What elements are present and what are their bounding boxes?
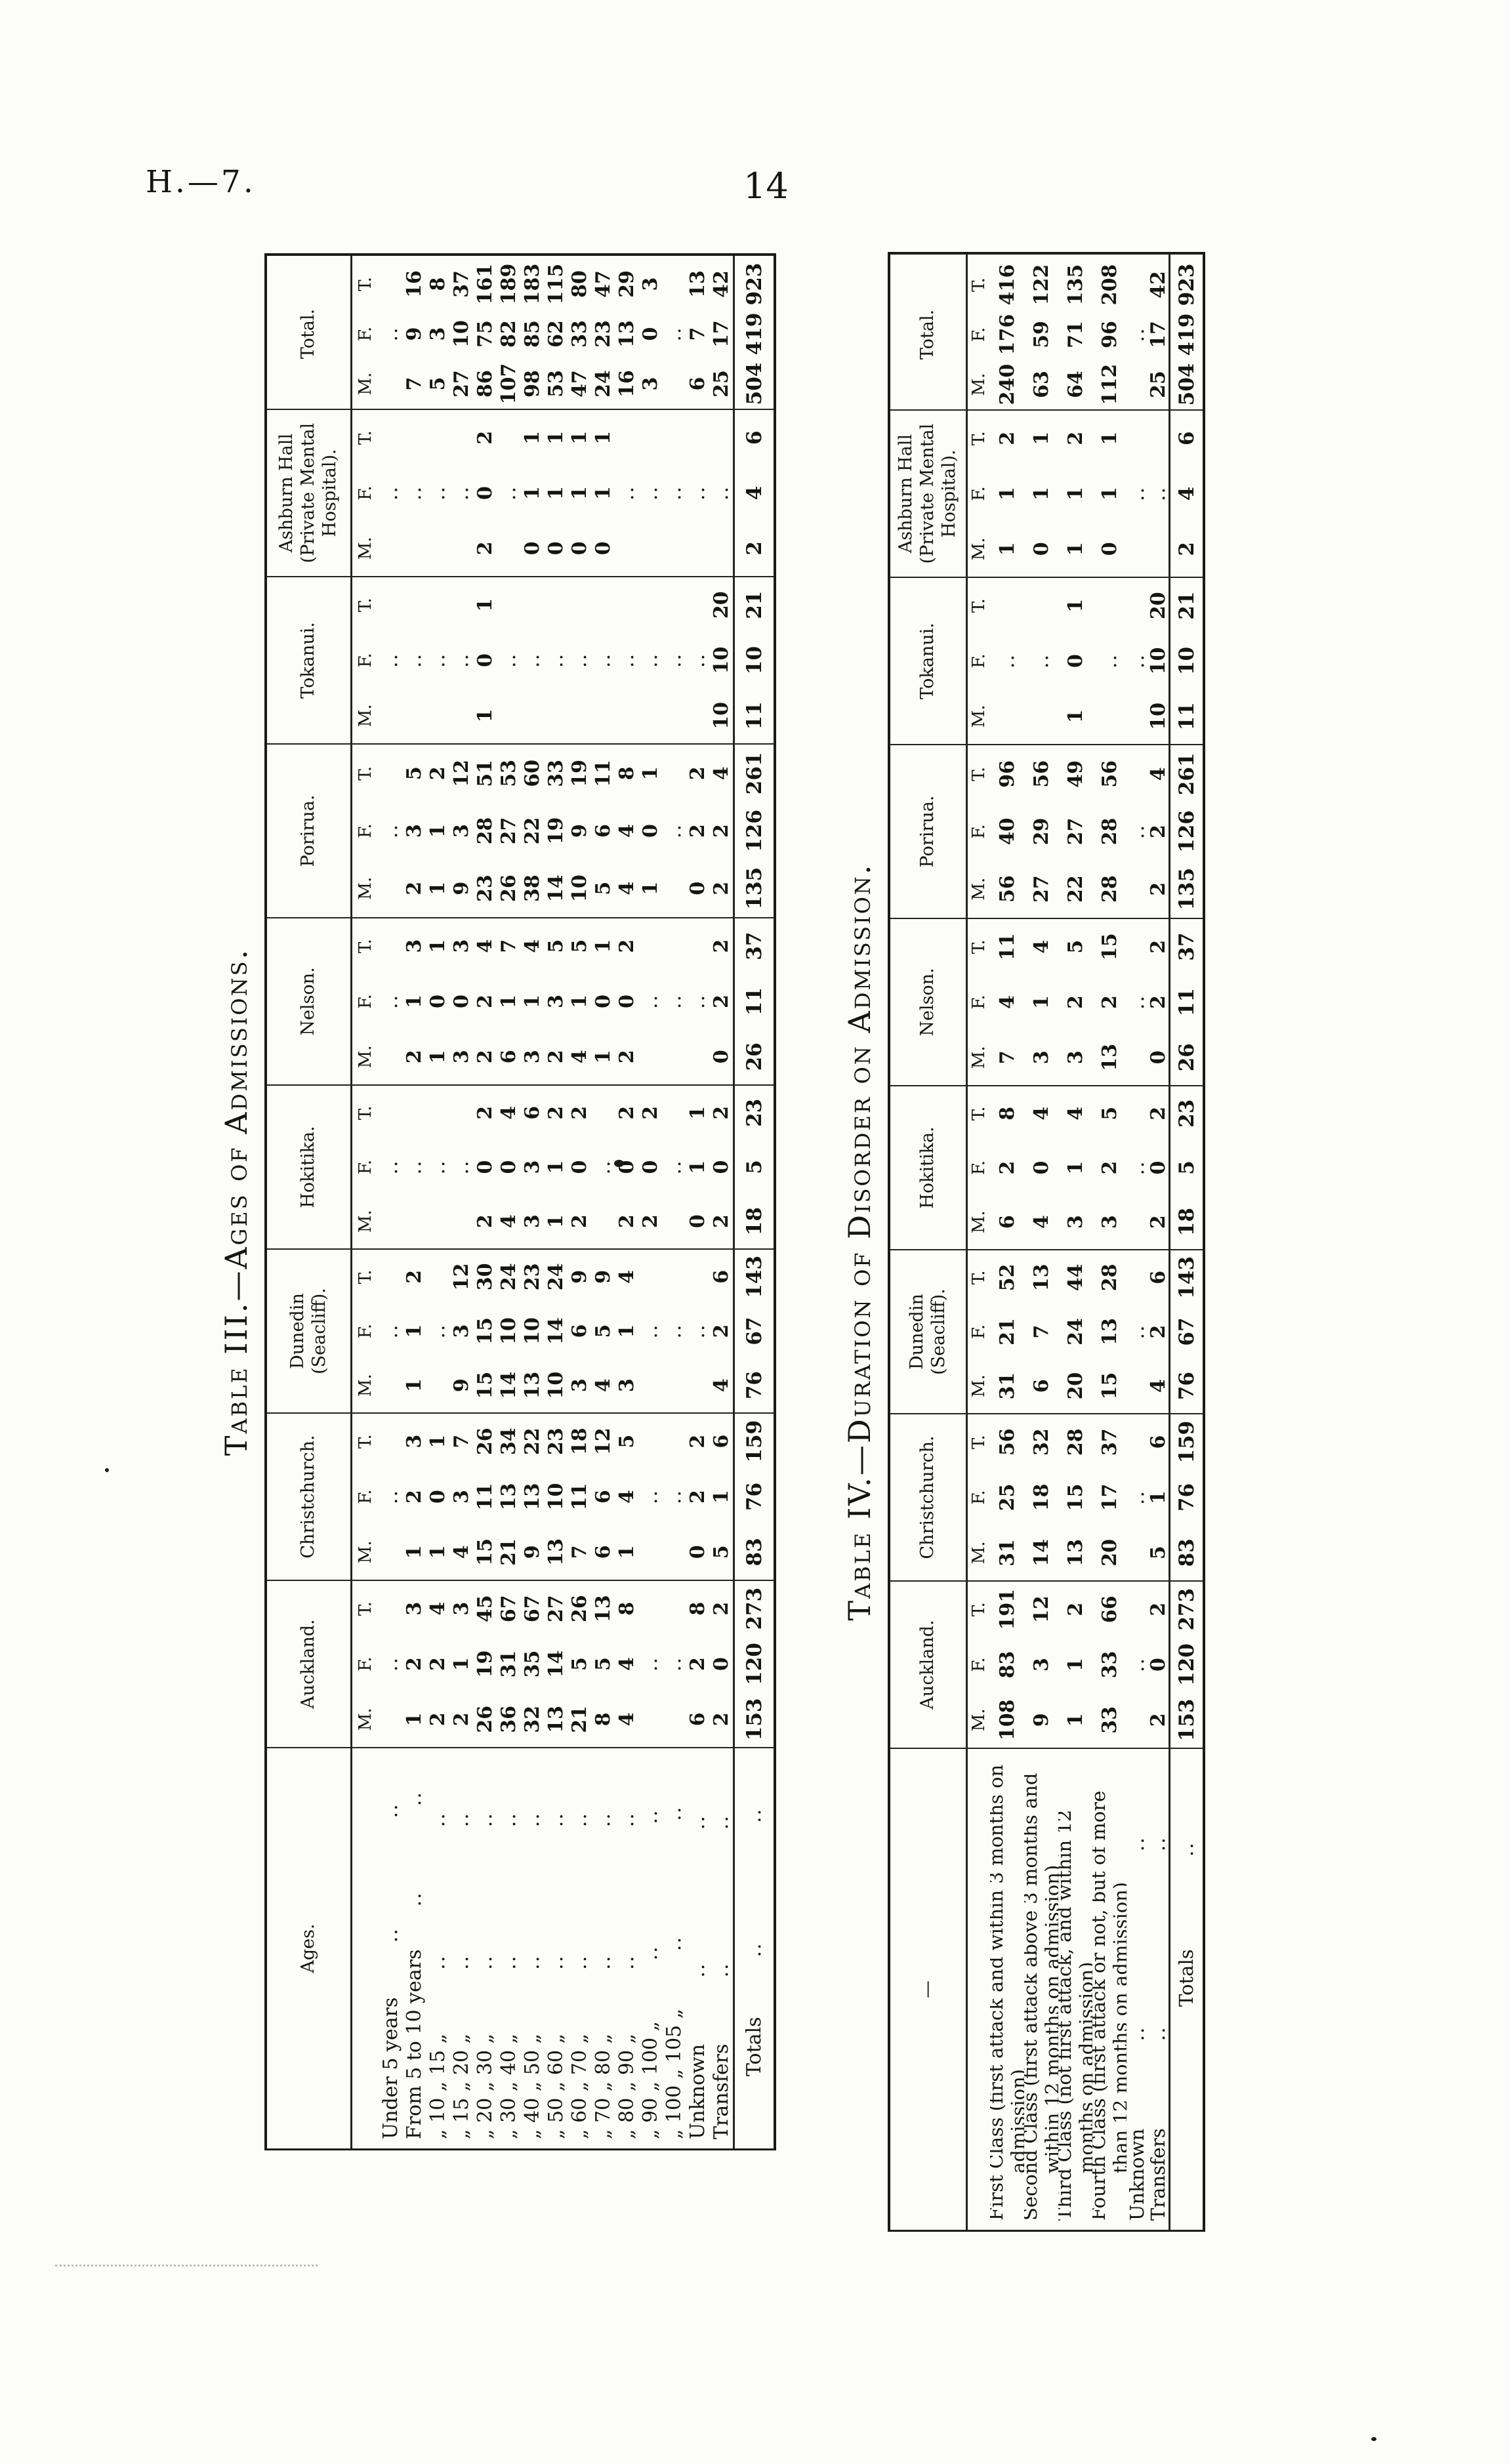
data-cell: 202 (709, 1086, 733, 1250)
totals-cell-m: 26 (1175, 1030, 1199, 1085)
stub-header: — (890, 1749, 966, 2230)
data-cell-mft: 101424 (545, 1250, 568, 1412)
data-cell-m: 3 (521, 1029, 544, 1084)
data-cell-m: 7 (403, 359, 426, 409)
data-cell-mft: .. (686, 577, 709, 743)
data-cell-mft: 303 (450, 918, 473, 1084)
data-cell-mft: 448 (615, 1581, 638, 1747)
data-cell-mft: .. (686, 1250, 709, 1412)
data-cell-mft: 251742 (1148, 260, 1169, 409)
data-cell-t (663, 1581, 686, 1636)
data-cell-t (686, 577, 709, 632)
data-cell-f: 3 (1030, 1637, 1053, 1692)
data-cell-mft: 101 (639, 745, 662, 917)
data-cell: .. (1092, 578, 1127, 745)
subheader-m: M. (969, 359, 989, 409)
totals-cell-f: 76 (743, 1469, 766, 1524)
data-cell-t: 4 (1064, 1086, 1087, 1141)
data-cell-t: 16 (403, 259, 426, 309)
data-cell-t: 11 (592, 745, 615, 802)
subheader-row: M.F.T.M.F.T.M.F.T.M.F.T.M.F.T.M.F.T.M.F.… (968, 255, 990, 2230)
document-reference: H.—7. (146, 164, 256, 200)
data-cell-m: 4 (710, 1358, 733, 1412)
data-cell-t: 8 (615, 1581, 638, 1636)
data-cell-f: 1 (686, 1140, 709, 1195)
data-cell: 272956 (1024, 745, 1058, 919)
data-cell-mft: .. (639, 410, 662, 576)
leader-dots: .. (1148, 1749, 1169, 1939)
totals-row: Totals..15312027383761597667143185232611… (1169, 255, 1203, 2230)
data-cell: 314 (520, 918, 544, 1086)
data-cell-m (686, 1029, 709, 1084)
data-cell: 232851 (473, 745, 497, 918)
table-iv: —Auckland.Christchurch.Dunedin (Seacliff… (888, 252, 1205, 2232)
data-cell-f: 4 (615, 802, 638, 860)
col-header-nelson: Nelson. (890, 919, 966, 1086)
data-cell-f: 40 (996, 803, 1019, 861)
data-cell-f: 1 (710, 1469, 733, 1524)
data-cell-m: 23 (474, 859, 497, 917)
subheader-mft: M.F.T. (356, 1414, 375, 1580)
row-label-cell: „ 70 „ 80 „.... (591, 1748, 615, 2148)
totals-cell-t: 159 (743, 1414, 766, 1469)
data-cell: 101 (591, 918, 615, 1086)
col-header-porirua: Porirua. (267, 745, 350, 918)
data-cell: 404 (1024, 1086, 1058, 1250)
data-cell-t: 28 (1098, 1250, 1121, 1305)
data-cell: .. (638, 1581, 662, 1748)
data-cell-t: 2 (1064, 1582, 1087, 1637)
totals-cell-mft: 7667143 (743, 1250, 766, 1412)
data-cell-f: 13 (521, 1469, 544, 1524)
data-cell-mft: .. (426, 410, 449, 576)
subheader-m: M. (356, 359, 375, 409)
data-cell: 8513 (591, 1581, 615, 1748)
row-label-cell: „ 90 „ 100 „.... (638, 1748, 662, 2148)
data-cell-m (1148, 522, 1169, 577)
data-cell-t: 23 (545, 1414, 568, 1469)
data-cell-f: 3 (450, 802, 473, 860)
data-cell-m: 2 (1148, 860, 1169, 918)
data-cell-f: .. (663, 1469, 686, 1524)
subheader-f: F. (969, 633, 989, 688)
data-cell-f: .. (1127, 466, 1148, 521)
data-cell-mft: 448 (615, 745, 638, 917)
row-label: „ 50 „ 60 „ (545, 2034, 568, 2139)
totals-cell: 18523 (1170, 1086, 1203, 1250)
data-cell-t: 12 (592, 1414, 615, 1469)
data-cell-f: .. (615, 465, 638, 520)
data-cell-mft: 336 (521, 1086, 544, 1248)
data-cell-m (1127, 1525, 1148, 1580)
data-cell-mft: 516 (1148, 1414, 1169, 1580)
table-row: Unknown....628022..011..022....6713 (686, 256, 709, 2148)
totals-cell: 504419923 (1170, 260, 1203, 411)
data-cell: .. (662, 577, 686, 745)
data-cell-f: 1 (1064, 1141, 1087, 1195)
subheader-mft: M.F.T. (969, 578, 989, 744)
data-cell-t (639, 1414, 662, 1469)
data-cell-m (1127, 689, 1148, 744)
totals-cell-mft: 246 (1175, 411, 1199, 577)
row-label: From 5 to 10 years (403, 1949, 426, 2139)
data-cell: 240176416 (990, 260, 1024, 411)
data-cell-mft: .. (1148, 411, 1169, 577)
data-cell-m: 31 (996, 1359, 1019, 1413)
subheader-t: T. (969, 919, 989, 974)
subheader: M.F.T. (968, 260, 990, 411)
data-cell-mft: 9312 (450, 745, 473, 917)
data-cell-m: 8 (592, 1692, 615, 1747)
data-cell-f: .. (1030, 633, 1053, 688)
data-cell-m: 4 (615, 1692, 638, 1747)
data-cell: .. (426, 1086, 449, 1250)
data-cell: 282856 (1092, 745, 1127, 919)
totals-cell-m: 153 (743, 1692, 766, 1747)
leader-dots: .. (474, 1891, 497, 2033)
data-cell-mft: 426 (710, 1250, 733, 1412)
data-cell-mft: 011 (1030, 411, 1053, 577)
data-cell-mft: .. (686, 410, 709, 576)
data-cell-t: 2 (996, 411, 1019, 466)
data-cell-mft: .. (568, 577, 591, 743)
stub-header: Ages. (267, 1748, 350, 2148)
data-cell-m: 4 (497, 1194, 520, 1248)
totals-cell-f: 419 (743, 309, 766, 359)
data-cell-m: 31 (996, 1525, 1019, 1580)
data-cell-mft: 141832 (1030, 1414, 1053, 1580)
data-cell-f: 3 (426, 309, 449, 359)
data-cell-t (592, 577, 615, 632)
data-cell-t: 115 (545, 259, 568, 309)
data-cell: 131023 (544, 1414, 568, 1581)
data-cell-mft: 101020 (710, 577, 733, 743)
data-cell-mft: 202 (474, 410, 497, 576)
data-cell-m: 1 (1064, 689, 1087, 744)
leader-dots: .. (639, 1748, 662, 1885)
data-cell-m: 3 (1064, 1030, 1087, 1085)
data-cell-t: 2 (686, 1414, 709, 1469)
data-cell-f: .. (426, 1140, 449, 1195)
data-cell-m: 2 (568, 1194, 591, 1248)
data-cell-t (639, 410, 662, 465)
data-cell-mft: .. (497, 410, 520, 576)
data-cell-f: 1 (403, 974, 426, 1029)
data-cell-m (1030, 689, 1053, 744)
data-cell-m (639, 688, 662, 743)
data-cell: 011 (544, 410, 568, 577)
data-cell-f: .. (379, 1304, 402, 1359)
data-cell: 5362115 (544, 259, 568, 410)
data-cell-t: 5 (545, 918, 568, 974)
data-cell-t (686, 918, 709, 974)
data-cell-mft: 202 (710, 1086, 733, 1248)
data-cell: 224 (1148, 745, 1169, 919)
data-cell-t (379, 918, 402, 974)
data-cell-t: 5 (615, 1414, 638, 1469)
data-cell: 101424 (544, 1250, 568, 1414)
data-cell-t: 26 (474, 1414, 497, 1469)
data-cell-t: 2 (1064, 411, 1087, 466)
data-cell-t (450, 410, 473, 465)
subheader-mft: M.F.T. (356, 577, 375, 743)
data-cell: 011 (1024, 411, 1058, 578)
data-cell-mft: 112 (403, 1250, 426, 1412)
data-cell-t: 7 (497, 918, 520, 974)
data-cell-m (1127, 359, 1148, 409)
totals-cell-m: 2 (743, 521, 766, 576)
data-cell-t (639, 918, 662, 974)
data-cell-m: 25 (1148, 359, 1169, 409)
data-cell-mft: .. (403, 577, 426, 743)
row-label: Transfers (1148, 2128, 1169, 2221)
data-cell: .. (497, 410, 520, 577)
data-cell-m: 7 (568, 1525, 591, 1580)
data-cell-f: 1 (568, 974, 591, 1029)
data-cell: 022 (686, 745, 709, 918)
data-cell-f: 0 (639, 802, 662, 860)
subheader: M.F.T. (352, 1250, 379, 1414)
subheader-t: T. (969, 578, 989, 633)
data-cell: 112 (544, 1086, 568, 1250)
data-cell-f: 10 (497, 1304, 520, 1359)
subheader-f: F. (969, 1305, 989, 1359)
data-cell-t: 1 (639, 745, 662, 802)
data-cell-t (379, 259, 402, 309)
data-cell-m (379, 521, 402, 576)
data-cell-f: .. (1127, 310, 1148, 359)
table-row: Under 5 years...................... (379, 256, 402, 2148)
data-cell-m: 1 (615, 1525, 638, 1580)
data-cell-m: 2 (1148, 1195, 1169, 1249)
data-cell: .. (402, 577, 426, 745)
data-cell-m: 4 (615, 859, 638, 917)
data-cell-t: 56 (1098, 745, 1121, 803)
data-cell-mft: 151126 (474, 1414, 497, 1580)
data-cell-m: 1 (1064, 522, 1087, 577)
data-cell-f: 10 (450, 309, 473, 359)
data-cell-mft: 202 (639, 1086, 662, 1248)
data-cell-mft: 473380 (568, 259, 591, 409)
col-header-christchurch: Christchurch. (267, 1414, 350, 1581)
data-cell-t (639, 577, 662, 632)
data-cell-m: 14 (1030, 1525, 1053, 1580)
data-cell-m: 2 (615, 1029, 638, 1084)
subheader-t: T. (356, 1581, 375, 1636)
data-cell-mft: 202 (615, 918, 638, 1084)
data-cell: .. (379, 259, 402, 410)
data-cell-mft: 011 (545, 410, 568, 576)
data-cell-f: .. (379, 802, 402, 860)
totals-cell-m: 83 (1175, 1525, 1199, 1580)
data-cell-t: 4 (1148, 745, 1169, 803)
data-cell: 131023 (520, 1250, 544, 1414)
totals-cell-m: 11 (743, 688, 766, 743)
data-cell: 202 (709, 1581, 733, 1748)
data-cell-f: .. (615, 632, 638, 688)
data-cell-m (426, 521, 449, 576)
leader-dots: .. (592, 1748, 615, 1891)
data-cell-m (1127, 522, 1148, 577)
data-cell-t (663, 745, 686, 802)
data-cell-f: 21 (996, 1305, 1019, 1359)
data-cell-f: 6 (568, 1304, 591, 1359)
data-cell-t (1127, 919, 1148, 974)
data-cell: 7916 (402, 259, 426, 410)
data-cell-mft: .. (450, 1086, 473, 1248)
data-cell-f: 14 (545, 1636, 568, 1691)
leader-dots: .. (568, 1891, 591, 2033)
data-cell-mft: 123 (403, 1414, 426, 1580)
subheader-mft: M.F.T. (969, 260, 989, 409)
data-cell-t: 2 (1148, 919, 1169, 974)
data-cell-f: 2 (1148, 1305, 1169, 1359)
data-cell: 022 (709, 918, 733, 1086)
totals-cell-mft: 153120273 (1175, 1582, 1199, 1748)
data-cell-mft: 516 (710, 1414, 733, 1580)
data-cell-t (1127, 1086, 1148, 1141)
subheader-f: F. (969, 466, 989, 521)
data-cell-m (1127, 860, 1148, 918)
data-cell-mft: 240176416 (996, 260, 1019, 409)
subheader-mft: M.F.T. (356, 259, 375, 409)
data-cell-mft: 011 (568, 410, 591, 576)
row-label: Second Class (first attack above 3 month… (1024, 1749, 1058, 2221)
data-cell: .. (1127, 1414, 1148, 1582)
data-cell-mft: 11296208 (1098, 260, 1121, 409)
row-label-cell: „ 100 „ 105 „.... (662, 1748, 686, 2148)
data-cell: 426 (709, 1250, 733, 1414)
data-cell-t (545, 577, 568, 632)
totals-cell: 18523 (735, 1086, 774, 1250)
data-cell-t: 45 (474, 1581, 497, 1636)
data-cell-mft: 202 (1148, 1086, 1169, 1249)
data-cell: 101020 (709, 577, 733, 745)
data-cell-t: 51 (474, 745, 497, 802)
data-cell-f: 1 (403, 1304, 426, 1359)
data-cell-f: 1 (426, 802, 449, 860)
data-cell: 382260 (520, 745, 544, 918)
leader-dots: .. (521, 1748, 544, 1891)
data-cell-m (639, 1692, 662, 1747)
data-cell: .. (1127, 260, 1148, 411)
fold-mark (55, 2265, 318, 2267)
data-cell-m (663, 1692, 686, 1747)
data-cell-f: 33 (1098, 1637, 1121, 1692)
data-cell-f: 2 (1064, 974, 1087, 1029)
row-label-cell: „ 80 „ 90 „.... (615, 1748, 638, 2148)
subheader-f: F. (969, 310, 989, 359)
data-cell-f: 28 (474, 802, 497, 860)
totals-cell-mft: 111021 (743, 577, 766, 743)
data-cell-m: 1 (426, 859, 449, 917)
data-cell-f: 1 (1098, 466, 1121, 521)
data-cell-m: 15 (1098, 1359, 1121, 1413)
data-cell-f: .. (686, 1304, 709, 1359)
data-cell-t: 1 (545, 410, 568, 465)
row-label: Unknown (1127, 2129, 1148, 2221)
data-cell-f: 2 (1148, 974, 1169, 1029)
data-cell-f: .. (663, 1140, 686, 1195)
data-cell: 437 (449, 1414, 473, 1581)
subheader-f: F. (356, 632, 375, 688)
data-cell: .. (1127, 1582, 1148, 1749)
leader-dots: .. (379, 1748, 402, 1873)
totals-cell: 135126261 (1170, 745, 1203, 919)
data-cell-t: 1 (1064, 578, 1087, 633)
data-cell-f: .. (497, 632, 520, 688)
subheader-mft: M.F.T. (969, 1086, 989, 1249)
data-cell-t: 3 (450, 918, 473, 974)
data-cell-f: 0 (568, 1140, 591, 1195)
data-cell-t: 5 (568, 918, 591, 974)
data-cell-mft: .. (710, 410, 733, 576)
data-cell-mft: .. (663, 1250, 686, 1412)
subheader-t: T. (969, 1414, 989, 1469)
scan-speck (614, 1160, 624, 1167)
subheader-m: M. (969, 1359, 989, 1413)
data-cell-t: 52 (996, 1250, 1019, 1305)
leader-dots: .. (521, 1891, 544, 2033)
data-cell-t: 2 (686, 745, 709, 802)
data-cell-mft: 5362115 (545, 259, 568, 409)
leader-dots: .. (450, 1891, 473, 2033)
leader-dots: .. (1148, 1939, 1169, 2128)
data-cell: .. (686, 918, 709, 1086)
data-cell-t: 4 (1030, 919, 1053, 974)
table-row: „ 40 „ 50 „....3235679132213102333631438… (520, 256, 544, 2148)
data-cell-t (1030, 578, 1053, 633)
totals-cell-f: 11 (743, 974, 766, 1029)
row-label: „ 20 „ 30 „ (474, 2034, 497, 2139)
data-cell-f: 27 (1064, 803, 1087, 861)
data-cell-mft: 404 (497, 1086, 520, 1248)
subheader-m: M. (969, 1525, 989, 1580)
data-cell-mft: .. (639, 1581, 662, 1747)
data-cell-mft: .. (1098, 578, 1121, 744)
data-cell-t (521, 577, 544, 632)
data-cell-m: 13 (545, 1525, 568, 1580)
data-cell: .. (1127, 1086, 1148, 1250)
data-cell-t: 66 (1098, 1582, 1121, 1637)
data-cell: 022 (1148, 919, 1169, 1086)
data-cell-mft: 426 (1148, 1250, 1169, 1413)
data-cell: .. (638, 410, 662, 577)
data-cell: 202 (1148, 1582, 1169, 1749)
data-cell-mft: 6471135 (1064, 260, 1087, 409)
data-cell-f: 0 (426, 974, 449, 1029)
data-cell-mft: 6713 (686, 259, 709, 409)
data-cell-t (379, 1086, 402, 1140)
col-header-christchurch: Christchurch. (890, 1414, 966, 1582)
data-cell-f: .. (379, 309, 402, 359)
data-cell-mft: .. (996, 578, 1019, 744)
data-cell-m (592, 1194, 615, 1248)
data-cell: 011 (520, 410, 544, 577)
totals-cell-mft: 504419923 (1175, 260, 1199, 409)
data-cell-f: 33 (568, 309, 591, 359)
data-cell-f: .. (450, 1140, 473, 1195)
header-row: —Auckland.Christchurch.Dunedin (Seacliff… (890, 255, 968, 2230)
data-cell: 202 (473, 410, 497, 577)
data-cell-mft: 7916 (403, 259, 426, 409)
subheader-stub (968, 1749, 990, 2230)
data-cell-m: 3 (450, 1029, 473, 1084)
data-cell-m (426, 688, 449, 743)
data-cell-mft: 224 (710, 745, 733, 917)
table-iii: Ages.Auckland.Christchurch.Dunedin (Seac… (264, 253, 776, 2150)
data-cell-f: 1 (521, 465, 544, 520)
